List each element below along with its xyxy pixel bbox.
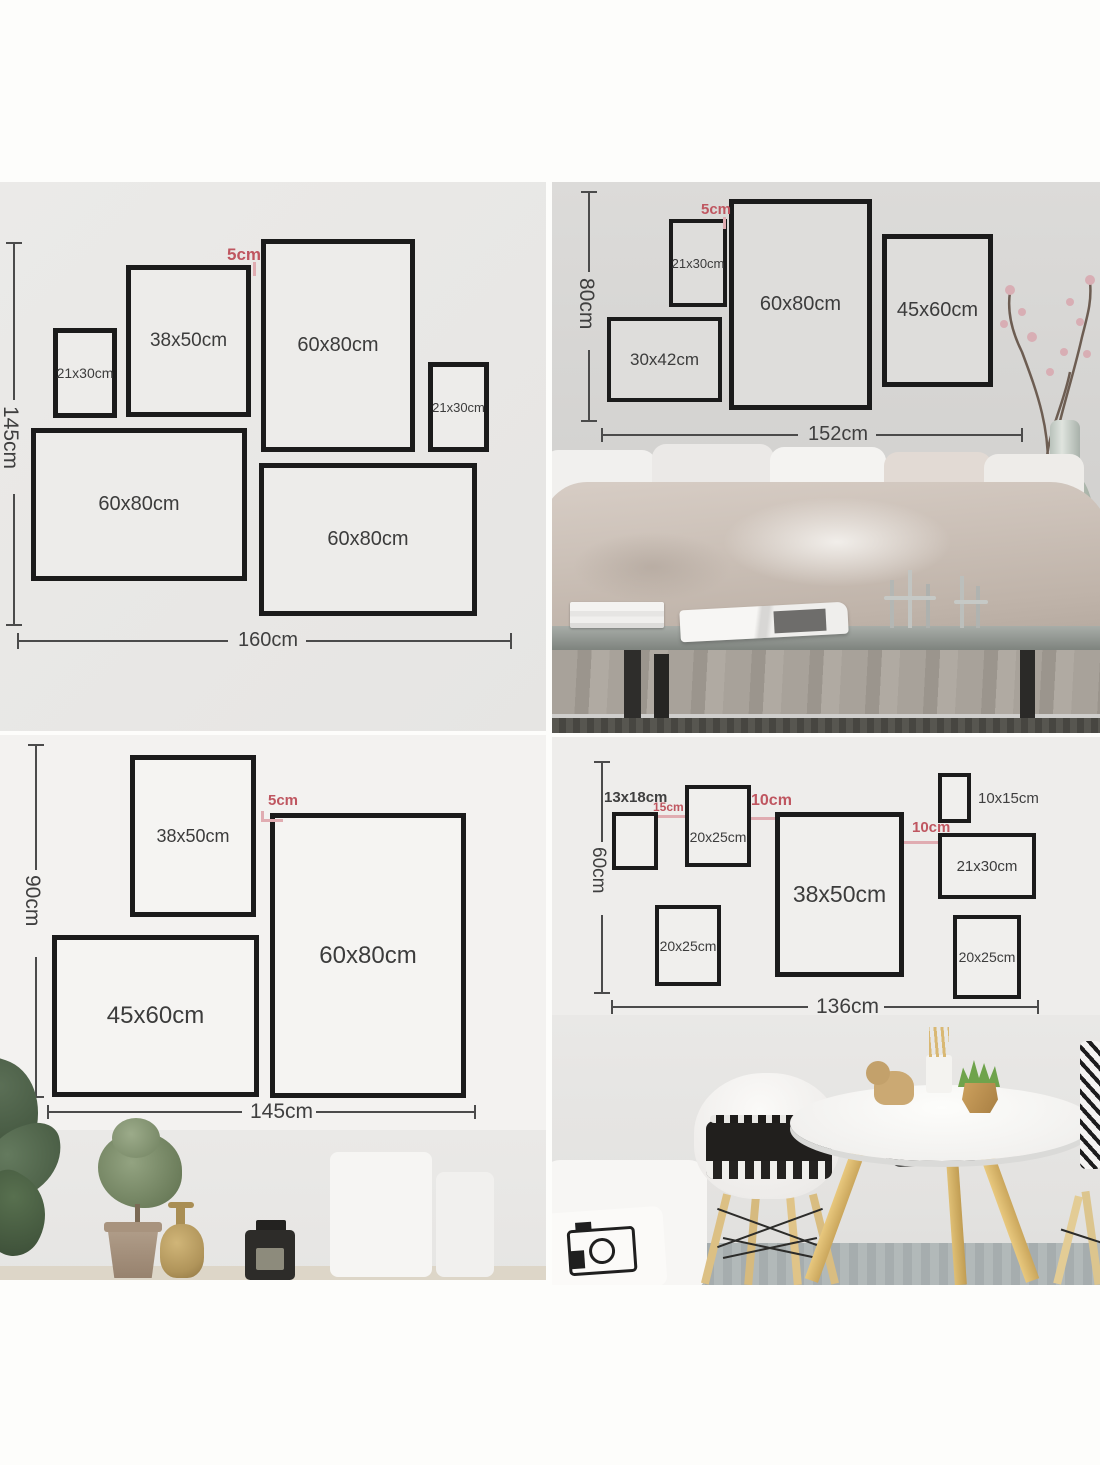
frame-size-label: 60x80cm [297, 334, 378, 357]
brass-mister-nozzle [168, 1202, 194, 1208]
frame-20x25: 20x25cm [685, 785, 751, 867]
frame-20x25: 20x25cm [655, 905, 721, 986]
candlestick [926, 584, 930, 628]
height-dimension-tick [594, 992, 610, 994]
open-book-page-image [773, 609, 826, 634]
width-dimension-line [48, 1111, 242, 1113]
geometric-planter [962, 1083, 998, 1113]
width-dimension-label: 145cm [250, 1100, 313, 1124]
frame-size-label: 20x25cm [690, 829, 747, 845]
pencil-cup [926, 1055, 952, 1093]
frame-size-label: 20x25cm [660, 938, 717, 954]
frame-45x60: 45x60cm [882, 234, 993, 387]
camera-print-pillow [552, 1206, 668, 1285]
quadrant-bottom-right: 60cm 13x18cm 10x15cm 20x25cm 38x50cm 21x… [552, 737, 1100, 1285]
frame-60x80: 60x80cm [729, 199, 872, 410]
frame-size-label: 21x30cm [957, 858, 1018, 875]
camera-body-fill [570, 1250, 585, 1269]
frame-60x80: 60x80cm [259, 463, 477, 616]
gap-size-label: 10cm [912, 819, 950, 836]
topiary-foliage [112, 1118, 160, 1158]
frame-size-label: 21x30cm [432, 400, 485, 415]
gap-marker [253, 262, 256, 276]
frame-21x30: 21x30cm [53, 328, 117, 418]
frame-60x80: 60x80cm [270, 813, 466, 1098]
frame-size-label: 38x50cm [150, 330, 227, 352]
frame-size-label: 38x50cm [156, 826, 229, 847]
height-dimension-tick [6, 624, 22, 626]
bench-leg [1020, 650, 1035, 722]
width-dimension-tick [474, 1105, 476, 1119]
duvet-fold [572, 532, 732, 602]
width-dimension-label: 152cm [808, 423, 868, 446]
width-dimension-tick [1037, 1000, 1039, 1014]
height-dimension-line [601, 915, 603, 993]
floor [552, 718, 1100, 733]
frame-size-label: 20x25cm [959, 949, 1016, 965]
width-dimension-line [18, 640, 228, 642]
gap-size-label: 5cm [701, 201, 731, 218]
frame-38x50: 38x50cm [130, 755, 256, 917]
wooden-elephant-head [866, 1061, 890, 1085]
width-dimension-line [306, 640, 511, 642]
frame-10x15 [938, 773, 971, 823]
frame-size-label: 60x80cm [98, 493, 179, 516]
gap-marker [723, 217, 726, 229]
height-dimension-line [588, 350, 590, 421]
frame-size-label: 10x15cm [978, 790, 1039, 807]
quadrant-top-left: 145cm 21x30cm 38x50cm 60x80cm 21x30cm 60… [0, 182, 546, 731]
camera-lens [588, 1237, 616, 1265]
gap-marker [751, 817, 775, 820]
candlestick [976, 586, 980, 628]
height-dimension-line [601, 762, 603, 842]
candlestick-arm [884, 596, 936, 600]
frame-size-label: 60x80cm [760, 293, 841, 316]
duvet-highlight [722, 497, 952, 587]
size-guide-grid: 145cm 21x30cm 38x50cm 60x80cm 21x30cm 60… [0, 0, 1100, 1465]
candlestick [890, 580, 894, 628]
width-dimension-line [876, 434, 1022, 436]
width-dimension-tick [1021, 428, 1023, 442]
white-vessel [436, 1172, 494, 1277]
height-dimension-tick [581, 420, 597, 422]
frame-38x50: 38x50cm [126, 265, 251, 417]
height-dimension-label: 90cm [20, 875, 44, 926]
gap-marker [658, 815, 685, 818]
quadrant-top-right: 80cm 21x30cm 30x42cm 60x80cm 45x60cm 5cm… [552, 182, 1100, 733]
frame-size-label: 21x30cm [672, 256, 725, 271]
gap-marker [261, 819, 283, 822]
zebra-textile [1080, 1041, 1100, 1169]
black-jar-label [256, 1248, 284, 1270]
dining-photo [552, 1015, 1100, 1285]
frame-size-label: 45x60cm [897, 299, 978, 322]
bench-leg [654, 654, 669, 724]
width-dimension-tick [510, 633, 512, 649]
height-dimension-line [13, 494, 15, 625]
frame-60x80: 60x80cm [31, 428, 247, 581]
width-dimension-label: 160cm [238, 629, 298, 652]
frame-size-label: 21x30cm [57, 365, 114, 381]
round-table-top [790, 1085, 1094, 1161]
brass-mister [160, 1224, 204, 1278]
frame-size-label: 60x80cm [327, 528, 408, 551]
frame-20x25: 20x25cm [953, 915, 1021, 999]
white-vessel [330, 1152, 432, 1277]
height-dimension-label: 80cm [574, 278, 598, 329]
book-stack [570, 602, 664, 628]
gap-size-label: 5cm [268, 792, 298, 809]
gap-marker [904, 841, 938, 844]
gap-size-label: 15cm [653, 800, 684, 814]
camera-icon [567, 1226, 638, 1277]
height-dimension-label: 145cm [0, 406, 22, 469]
camera-flash [575, 1222, 592, 1231]
width-dimension-line [612, 1006, 808, 1008]
frame-size-label: 38x50cm [793, 881, 886, 908]
height-dimension-line [13, 243, 15, 400]
width-dimension-line [884, 1006, 1038, 1008]
height-dimension-line [35, 957, 37, 1097]
quadrant-bottom-left: 90cm 38x50cm 60x80cm 45x60cm 5cm 145cm [0, 735, 546, 1280]
frame-21x30: 21x30cm [669, 219, 727, 307]
height-dimension-label: 60cm [587, 847, 609, 893]
frame-size-label: 30x42cm [630, 350, 699, 370]
frame-30x42: 30x42cm [607, 317, 722, 402]
height-dimension-line [588, 192, 590, 272]
frame-13x18 [612, 812, 658, 870]
frame-21x30: 21x30cm [938, 833, 1036, 899]
width-dimension-line [602, 434, 798, 436]
frame-21x30: 21x30cm [428, 362, 489, 452]
gap-size-label: 10cm [751, 792, 792, 810]
frame-38x50: 38x50cm [775, 812, 904, 977]
shelf-photo [0, 1130, 546, 1280]
terracotta-pot-rim [104, 1222, 162, 1232]
pencil-sticks [929, 1027, 949, 1057]
height-dimension-line [35, 745, 37, 870]
frame-45x60: 45x60cm [52, 935, 259, 1097]
frame-size-label: 60x80cm [319, 942, 416, 970]
bench-leg [624, 648, 641, 724]
frame-60x80: 60x80cm [261, 239, 415, 452]
succulent-plant [958, 1057, 1000, 1087]
folded-blanket-pattern [706, 1161, 832, 1179]
candlestick-arm [954, 600, 988, 604]
terracotta-pot [107, 1224, 159, 1278]
width-dimension-line [316, 1111, 475, 1113]
frame-size-label: 45x60cm [107, 1002, 204, 1030]
